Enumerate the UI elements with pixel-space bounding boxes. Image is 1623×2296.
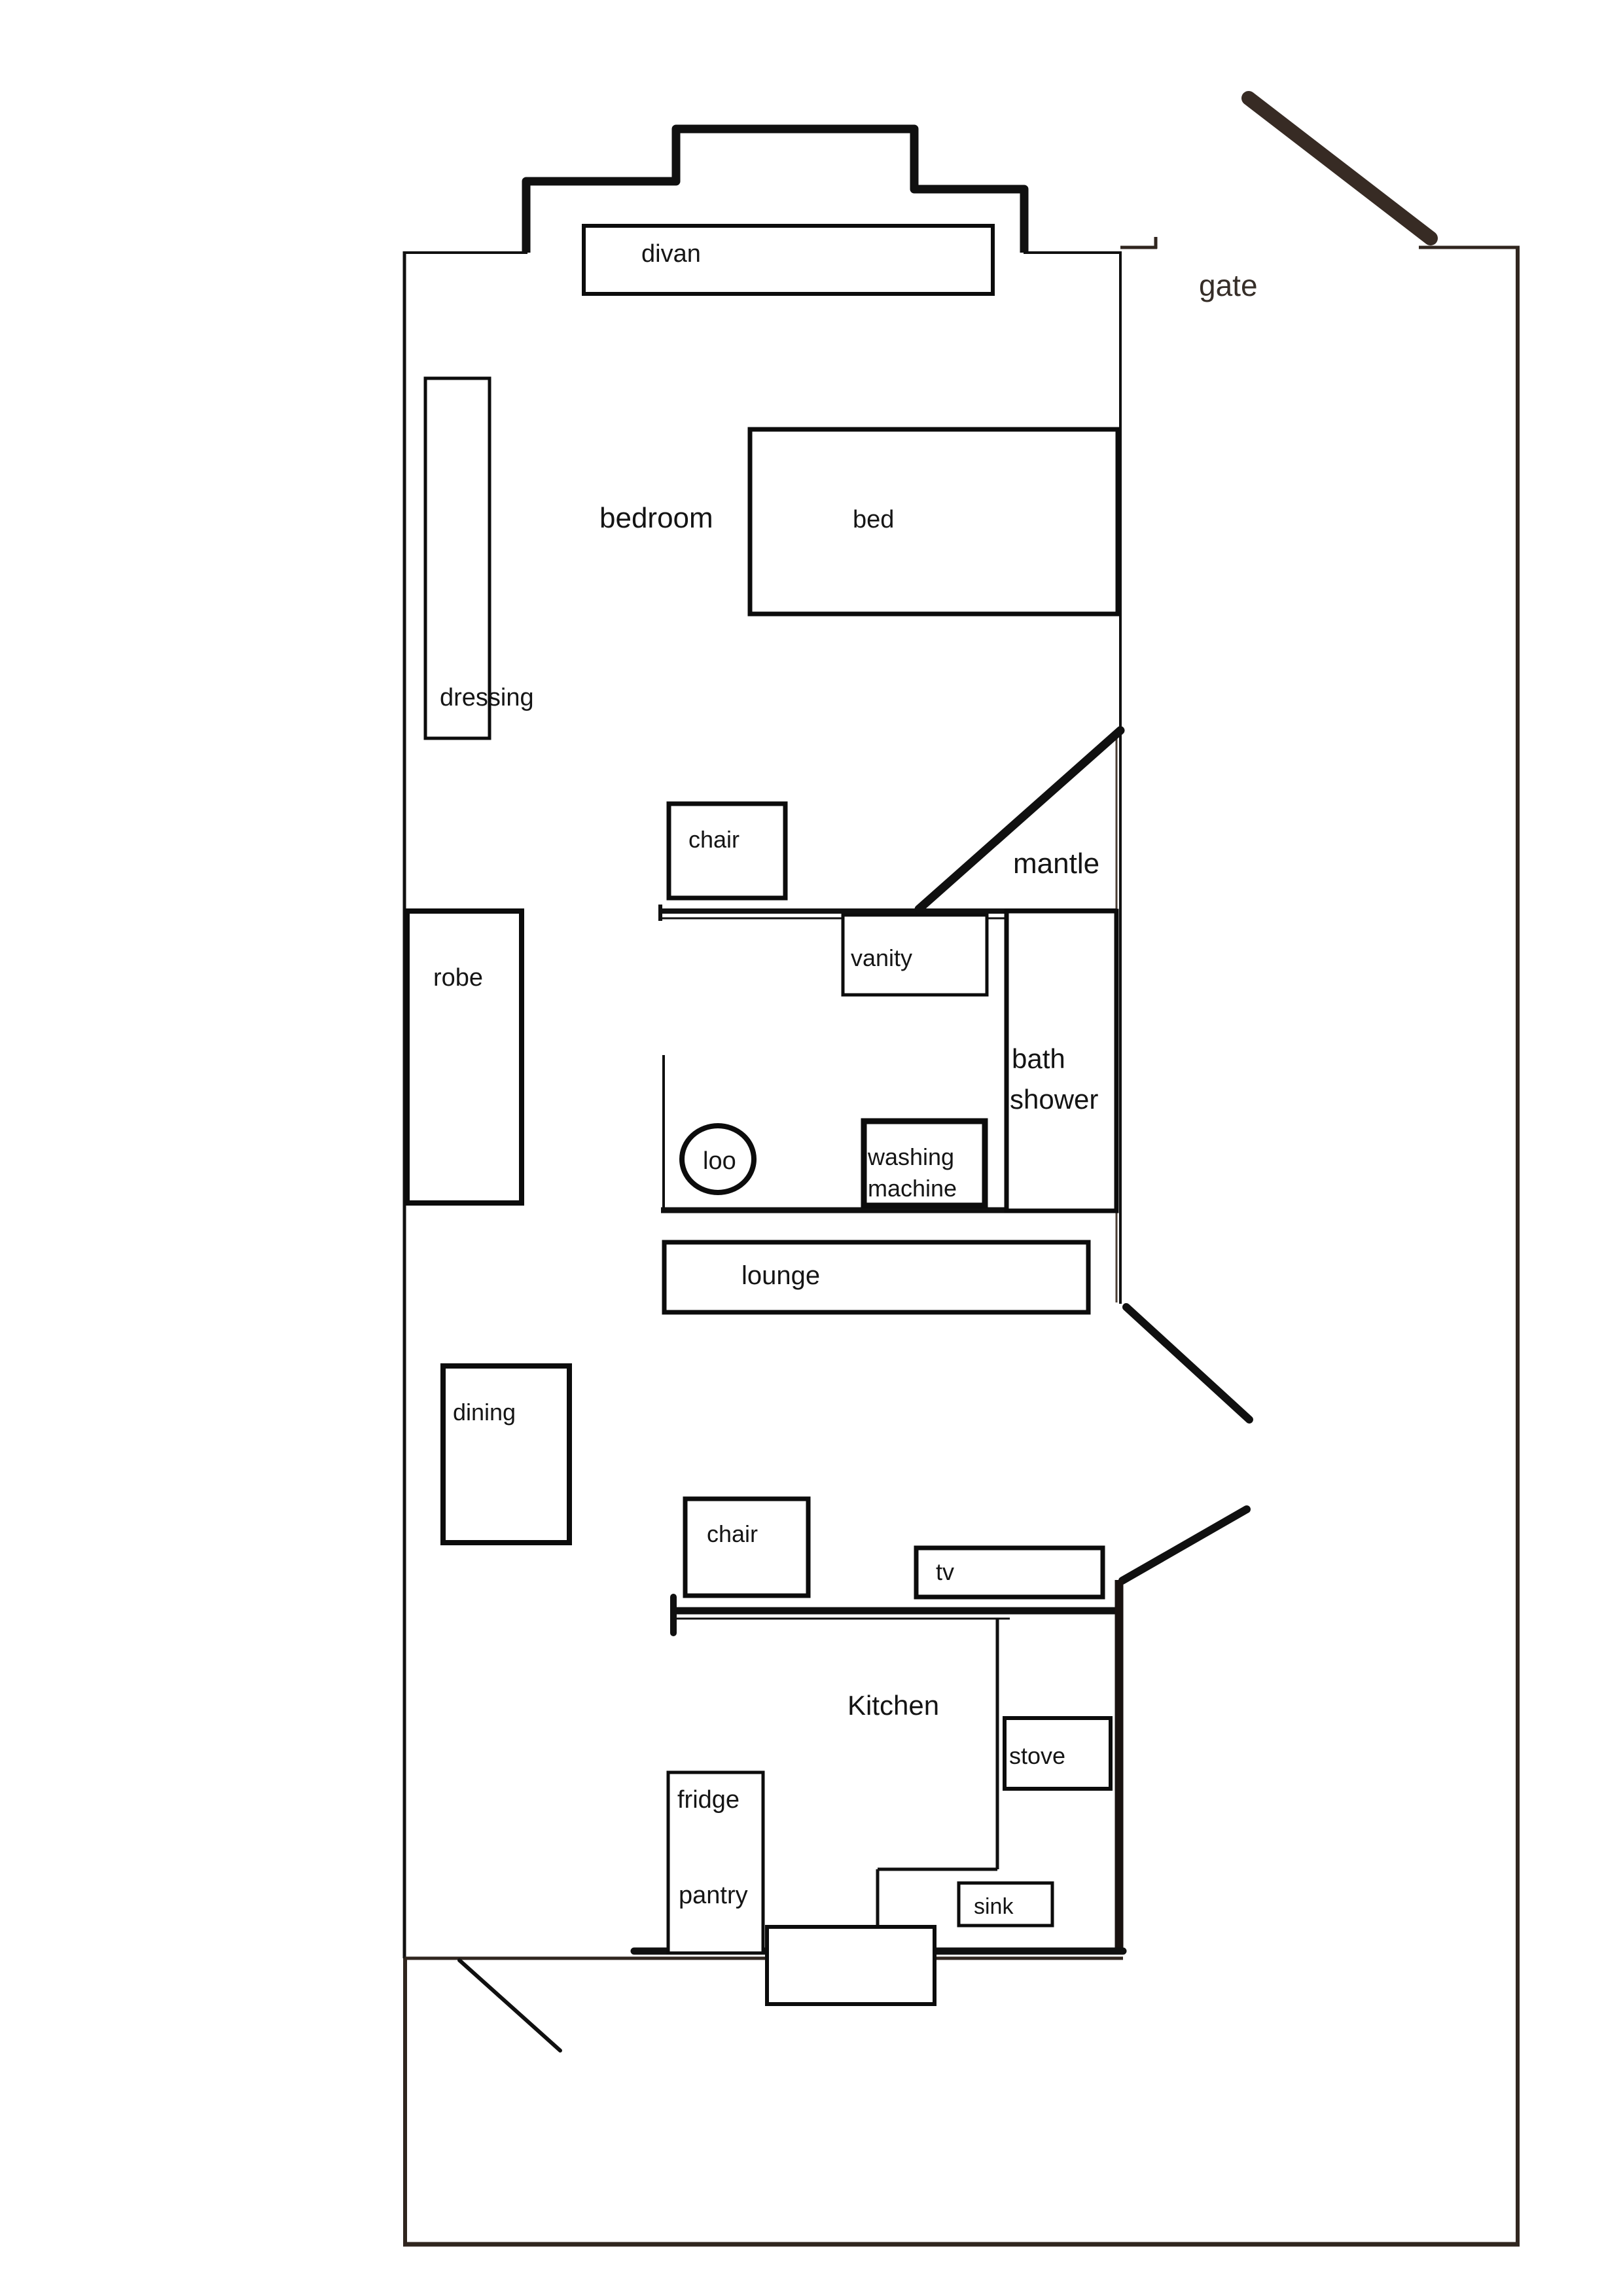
bedroom-label: bedroom: [599, 502, 713, 534]
lounge-label: lounge: [741, 1261, 820, 1290]
furniture-robe: robe: [407, 911, 522, 1203]
furniture-fridge-pantry: fridge pantry: [668, 1772, 763, 1953]
furniture-bed: bed: [750, 429, 1118, 614]
shower-label: shower: [1010, 1084, 1098, 1115]
chair-living-rect: [685, 1499, 808, 1596]
divan-label: divan: [641, 240, 701, 268]
furniture-sink: sink: [959, 1883, 1052, 1926]
floor-plan: divan bed dressing chair robe vanity bat…: [0, 0, 1623, 2296]
vanity-label: vanity: [851, 944, 912, 971]
furniture-divan: divan: [584, 226, 993, 294]
furniture-washing-machine: washing machine: [864, 1121, 985, 1206]
lounge-rect: [664, 1242, 1088, 1312]
dining-rect: [443, 1366, 569, 1543]
stove-label: stove: [1009, 1742, 1065, 1769]
furniture-bench-unlabeled: [767, 1927, 935, 2004]
dressing-label: dressing: [440, 684, 534, 711]
chair-living-label: chair: [707, 1520, 758, 1547]
furniture-chair-bedroom: chair: [669, 804, 785, 898]
bed-rect: [750, 429, 1118, 614]
sink-label: sink: [974, 1894, 1014, 1919]
furniture-vanity: vanity: [843, 915, 987, 995]
furniture-loo: loo: [682, 1126, 754, 1193]
robe-label: robe: [433, 964, 483, 992]
fridge-label: fridge: [677, 1786, 740, 1814]
mantle-diagonal: [919, 730, 1120, 909]
gate-leaf: [1249, 98, 1431, 238]
robe-rect: [407, 911, 522, 1203]
chair-bedroom-label: chair: [688, 826, 740, 853]
bed-label: bed: [853, 506, 894, 533]
furniture-tv: tv: [916, 1548, 1103, 1597]
mantle-label: mantle: [1013, 848, 1099, 880]
tv-label: tv: [936, 1558, 954, 1585]
kitchen-label: Kitchen: [847, 1690, 939, 1721]
furniture-bathtub: bath shower: [1007, 911, 1116, 1211]
bath-label: bath: [1012, 1043, 1065, 1074]
dining-label: dining: [453, 1399, 516, 1426]
washing-machine-label-line2: machine: [868, 1175, 957, 1202]
furniture-stove: stove: [1005, 1718, 1111, 1789]
furniture-lounge: lounge: [664, 1242, 1088, 1312]
door-leaf-lower: [1122, 1509, 1247, 1581]
door-leaf-upper: [1126, 1307, 1249, 1420]
bench-rect: [767, 1927, 935, 2004]
furniture-dining: dining: [443, 1366, 569, 1543]
loo-label: loo: [703, 1147, 736, 1175]
pantry-label: pantry: [679, 1882, 748, 1909]
back-door-swing: [459, 1960, 560, 2051]
gate-label: gate: [1199, 268, 1258, 302]
furniture-dressing: dressing: [425, 378, 534, 738]
furniture-chair-living: chair: [685, 1499, 808, 1596]
washing-machine-label-line1: washing: [867, 1143, 954, 1170]
